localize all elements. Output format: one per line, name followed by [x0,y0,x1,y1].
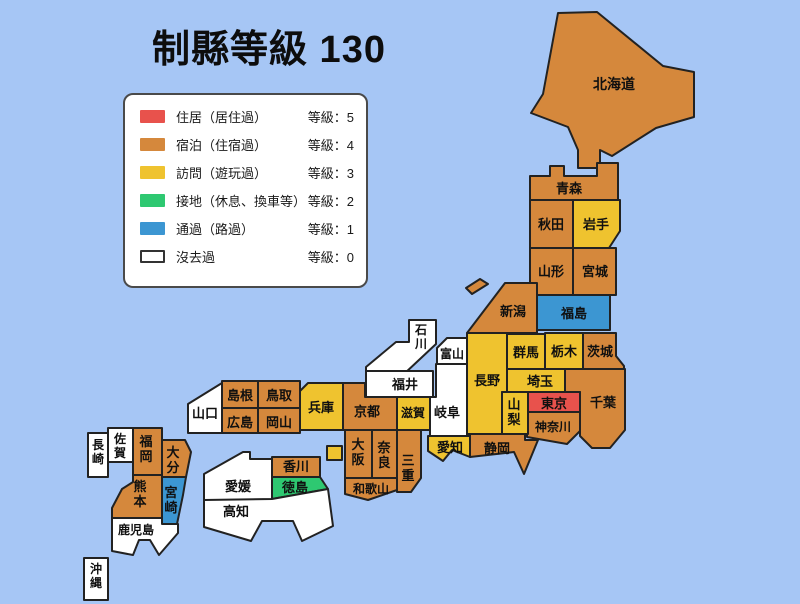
prefecture-label-wakayama: 和歌山 [352,481,389,496]
island-sado[interactable] [466,279,488,294]
prefecture-label-chiba: 千葉 [590,395,617,410]
prefecture-label-shiga: 滋賀 [401,405,425,420]
prefecture-label-hyogo: 兵庫 [308,400,334,415]
prefecture-label-shimane: 島根 [227,388,254,403]
prefecture-label-ehime: 愛媛 [225,479,252,494]
prefecture-label-yamagata: 山形 [538,264,564,279]
prefecture-label-osaka: 大阪 [351,437,365,467]
prefecture-label-kagawa: 香川 [282,459,309,474]
prefecture-label-kagoshima: 鹿児島 [118,522,154,537]
japan-map: 北海道青森秋田岩手山形宮城新潟福島茨城栃木群馬埼玉千葉東京神奈川長野山梨富山石川… [0,0,800,604]
prefecture-label-tokushima: 徳島 [281,480,308,495]
prefecture-label-hokkaido: 北海道 [593,76,635,92]
prefecture-label-tottori: 鳥取 [266,388,293,403]
prefecture-label-yamanashi: 山梨 [506,397,521,427]
prefecture-label-fukushima: 福島 [560,306,587,321]
prefecture-label-kyoto: 京都 [354,404,380,419]
prefecture-label-toyama: 富山 [440,346,464,361]
prefecture-label-saga: 佐賀 [113,431,126,460]
prefecture-label-gunma: 群馬 [513,345,539,360]
prefecture-label-shizuoka: 静岡 [484,441,510,456]
prefecture-label-okayama: 岡山 [266,415,292,430]
prefecture-label-yamaguchi: 山口 [192,406,218,421]
page-background: { "title": "制縣等級 130", "legend": { "item… [0,0,800,604]
prefecture-label-nara: 奈良 [376,440,391,470]
prefecture-label-nagasaki: 長崎 [92,437,105,466]
prefecture-label-nagano: 長野 [474,373,500,388]
prefecture-label-gifu: 岐阜 [434,405,460,420]
prefecture-label-fukuoka: 福岡 [138,434,152,464]
island-awaji[interactable] [327,446,342,460]
prefecture-label-iwate: 岩手 [582,217,609,232]
prefecture-label-ibaraki: 茨城 [587,344,613,359]
prefecture-label-kumamoto: 熊本 [133,479,146,509]
prefecture-gifu[interactable] [430,364,467,436]
prefecture-label-fukui: 福井 [391,377,418,392]
prefecture-label-okinawa: 沖縄 [90,561,102,590]
prefecture-label-miyagi: 宮城 [582,264,608,279]
prefecture-label-kochi: 高知 [223,504,249,519]
prefecture-label-akita: 秋田 [538,217,564,232]
prefecture-label-tochigi: 栃木 [551,344,578,359]
prefecture-label-oita: 大分 [166,445,179,475]
prefecture-label-tokyo: 東京 [541,396,567,411]
prefecture-label-ishikawa: 石川 [414,323,427,351]
prefecture-label-miyazaki: 宮崎 [164,485,177,515]
prefecture-label-niigata: 新潟 [500,304,526,319]
prefecture-label-mie: 三重 [401,453,414,483]
prefecture-label-aomori: 青森 [556,181,583,196]
prefecture-label-kanagawa: 神奈川 [535,419,571,434]
prefecture-label-aichi: 愛知 [437,440,463,455]
prefecture-label-saitama: 埼玉 [527,374,553,389]
prefecture-label-hiroshima: 広島 [227,415,253,430]
